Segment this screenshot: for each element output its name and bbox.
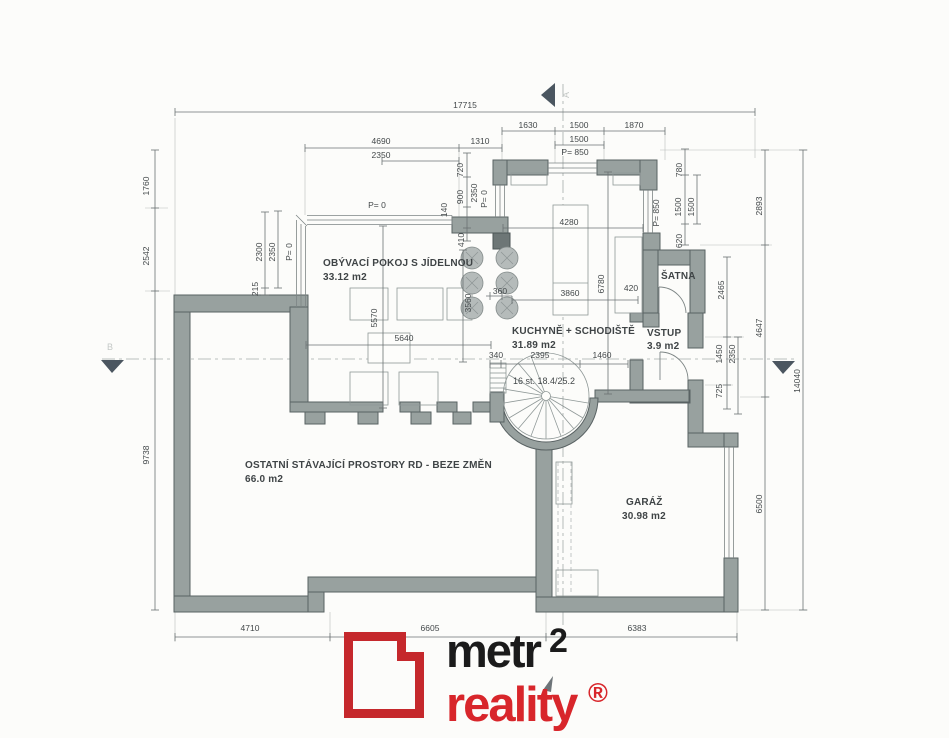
wall-existing-top <box>174 295 308 312</box>
dim-label: 1870 <box>625 120 644 130</box>
wall-vstup-right-bottom <box>688 380 703 433</box>
dim-label: 1760 <box>141 176 151 195</box>
spiral-stair-center <box>542 392 551 401</box>
wall-existing-bottom-left <box>174 596 324 612</box>
dim-label: 900 <box>455 190 465 204</box>
dim-label: 14040 <box>792 369 802 393</box>
dim-label: 780 <box>674 163 684 177</box>
logo-reg-mark: ® <box>588 678 608 708</box>
room-label-living: OBÝVACÍ POKOJ S JÍDELNOU <box>323 256 473 269</box>
dim-label: 720 <box>455 163 465 177</box>
wall-kitchen-right-top <box>640 160 657 190</box>
dim-label: 2395 <box>531 350 550 360</box>
wall-satna-left <box>643 250 658 320</box>
dim-label: P= 850 <box>561 147 588 157</box>
wall-garage-right-bottom <box>724 558 738 612</box>
dim-label: 2893 <box>754 196 764 215</box>
window-garage-right <box>725 447 734 558</box>
wall-pillar-kitchen <box>493 233 510 249</box>
dim-label: 2350 <box>469 183 479 202</box>
room-area-living: 33.12 m2 <box>323 272 367 283</box>
dim-label: 6780 <box>596 274 606 293</box>
dim-label: 1460 <box>593 350 612 360</box>
dim-label: 1500 <box>570 134 589 144</box>
wall-living-bottom-1 <box>290 402 383 412</box>
wall-living-left <box>290 307 308 412</box>
dim-label: 17715 <box>453 100 477 110</box>
dim-label: 4647 <box>754 318 764 337</box>
dim-label: 620 <box>674 234 684 248</box>
room-label-garage: GARÁŽ <box>626 495 663 508</box>
garage-box <box>556 570 598 596</box>
dim-label: P= 850 <box>651 199 661 226</box>
section-lines <box>102 84 798 640</box>
windows <box>296 163 734 558</box>
wall-garage-top <box>595 390 689 402</box>
dim-label: 2542 <box>141 246 151 265</box>
room-label-kitchen: KUCHYNĚ + SCHODIŠTĚ <box>512 324 635 337</box>
wall-kitchen-top-left-stub <box>493 160 507 185</box>
room-area-existing: 66.0 m2 <box>245 474 283 485</box>
dim-label: 1500 <box>673 197 683 216</box>
logo-sup-2: 2 <box>549 622 568 660</box>
dim-label: 1500 <box>570 120 589 130</box>
room-label-existing: OSTATNÍ STÁVAJÍCÍ PROSTORY RD - BEZE ZMĚ… <box>245 458 492 471</box>
sofa-2 <box>397 288 443 320</box>
sofa-4 <box>350 372 388 405</box>
logo-square-icon <box>344 632 424 718</box>
window-living-top <box>296 215 452 226</box>
floor-plan-page: 17715 4690 1310 2350 1630 1500 1870 1500… <box>0 0 949 738</box>
dimension-lines <box>151 108 807 641</box>
dim-label: 3860 <box>561 288 580 298</box>
stairs-note: 16 st. 18.4/25.2 <box>513 376 575 386</box>
room-label-wardrobe: ŠATNA <box>661 269 696 282</box>
wall-garage-left <box>536 445 552 612</box>
window-kitchen-left <box>496 185 505 218</box>
dim-label: 9738 <box>141 445 151 464</box>
dim-label: 420 <box>624 283 638 293</box>
floor-plan-drawing: 17715 4690 1310 2350 1630 1500 1870 1500… <box>0 0 949 738</box>
logo-word-metr: metr <box>446 624 542 677</box>
wall-pillar-4 <box>453 412 471 424</box>
sofa-5 <box>399 372 438 405</box>
room-area-entry: 3.9 m2 <box>647 341 680 352</box>
dim-label: 5640 <box>395 333 414 343</box>
wall-pillar-2 <box>358 412 378 424</box>
section-label-a: A <box>561 92 571 98</box>
wall-left-outer <box>174 295 190 612</box>
section-marker-b-left <box>101 360 124 373</box>
wall-satna-bottom <box>643 313 659 327</box>
dim-label: 410 <box>456 233 466 247</box>
dim-label: 5570 <box>369 308 379 327</box>
wall-garage-bottom <box>536 597 738 612</box>
wall-living-bottom-3 <box>437 402 457 412</box>
dim-label: 4280 <box>560 217 579 227</box>
door-satna <box>659 287 686 313</box>
wall-vstup-right-top <box>688 313 703 348</box>
dim-label: 3560 <box>463 293 473 312</box>
window-living-left <box>297 220 306 307</box>
wall-vstup-left-top <box>630 313 643 322</box>
garage-shelf <box>556 462 572 504</box>
window-kitchen-top <box>548 163 597 173</box>
dim-label: 6383 <box>628 623 647 633</box>
logo-word-reality: reality <box>446 678 578 732</box>
wall-living-top-chunk <box>452 217 508 233</box>
dimension-labels: 17715 4690 1310 2350 1630 1500 1870 1500… <box>141 100 802 633</box>
dim-label: 2350 <box>372 150 391 160</box>
wall-stair-left-block <box>490 392 504 422</box>
dim-label: 6605 <box>421 623 440 633</box>
dim-label: 1630 <box>519 120 538 130</box>
dim-label: 2465 <box>716 280 726 299</box>
walls <box>174 160 738 612</box>
dim-label: 4710 <box>241 623 260 633</box>
dim-label: 1500 <box>686 197 696 216</box>
dim-label: 1310 <box>471 136 490 146</box>
dim-label: P= 0 <box>368 200 386 210</box>
dim-label: 2350 <box>727 344 737 363</box>
room-area-garage: 30.98 m2 <box>622 511 666 522</box>
wall-living-bottom-2 <box>400 402 420 412</box>
dim-label: 360 <box>493 286 507 296</box>
dim-label: 140 <box>439 203 449 217</box>
wall-porch-bottom <box>688 433 724 447</box>
room-label-entry: VSTUP <box>647 328 681 339</box>
section-label-b: B <box>107 342 113 352</box>
dim-label: 215 <box>250 282 260 296</box>
dim-label: 340 <box>489 350 503 360</box>
wall-garage-right-top <box>724 433 738 447</box>
dim-label: P= 0 <box>479 190 489 208</box>
dim-label: 725 <box>714 384 724 398</box>
dim-label: 6500 <box>754 494 764 513</box>
wall-existing-bottom-right <box>308 577 536 592</box>
dim-label: P= 0 <box>284 243 294 261</box>
section-marker-a <box>541 83 555 107</box>
wall-pillar-3 <box>411 412 431 424</box>
room-area-kitchen: 31.89 m2 <box>512 340 556 351</box>
logo: metr 2 reality ® <box>344 622 608 732</box>
wall-pillar-1 <box>305 412 325 424</box>
dim-label: 4690 <box>372 136 391 146</box>
dim-label: 2350 <box>267 242 277 261</box>
door-entry <box>660 352 688 380</box>
dim-label: 1450 <box>714 344 724 363</box>
dim-label: 2300 <box>254 242 264 261</box>
